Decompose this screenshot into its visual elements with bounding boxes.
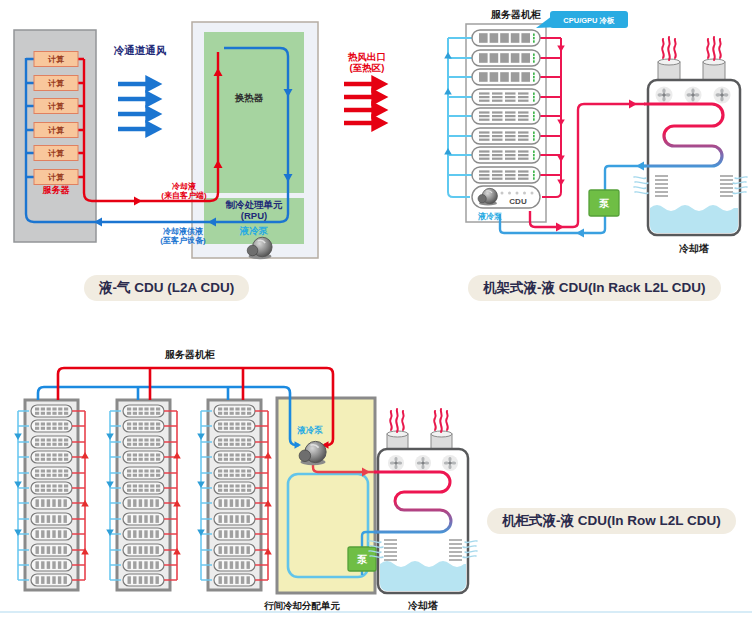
compute-label: 计算 <box>47 126 64 135</box>
server-label: 服务器 <box>42 185 71 195</box>
cabinet-label: 服务器机柜 <box>490 9 541 20</box>
server-rack-3 <box>197 400 272 590</box>
pump-label: 液冷泵 <box>477 211 502 221</box>
l2a-cdu-diagram: 计算 计算 计算 计算 计算 计算 服务器 冷通道通风 热风出口 (至热区) 冷… <box>14 22 386 259</box>
coolant-supply-label: 冷却液供液 <box>163 226 204 236</box>
fan-icon <box>442 455 458 471</box>
coolant-in-label: 冷却液 <box>172 181 197 191</box>
coolant-in-sublabel: (来自客户端) <box>161 190 207 200</box>
cabinet-label: 服务器机柜 <box>164 349 215 360</box>
compute-label: 计算 <box>47 55 64 64</box>
pump-label: 液冷泵 <box>296 425 323 435</box>
in-row-cdu-diagram: 服务器机柜 液冷泵 泵 <box>14 349 477 611</box>
cold-aisle-airflow-arrows <box>118 84 148 129</box>
hot-air-outlet-sublabel: (至热区) <box>350 62 385 73</box>
tower-label: 冷却塔 <box>679 243 710 254</box>
in-row-unit-label: 行间冷却分配单元 <box>263 600 341 611</box>
coldplate-tag-label: CPU/GPU 冷板 <box>563 16 615 25</box>
cold-aisle-label: 冷通道通风 <box>114 44 167 56</box>
heat-exhaust-icon <box>390 409 404 432</box>
facility-pump-label: 泵 <box>598 198 610 209</box>
cooling-tower: 冷却塔 <box>634 37 747 254</box>
pump-label: 液冷泵 <box>239 225 269 236</box>
facility-pump-label: 泵 <box>356 554 368 565</box>
coolant-supply-sublabel: (至客户设备) <box>160 235 206 245</box>
compute-label: 计算 <box>47 102 64 111</box>
fan-icon <box>655 86 672 103</box>
tower-label: 冷却塔 <box>408 600 439 611</box>
in-rack-title-pill: 机架式液-液 CDU(In Rack L2L CDU) <box>468 275 721 301</box>
bottom-divider <box>0 611 752 613</box>
compute-label: 计算 <box>47 79 64 88</box>
hot-air-arrows <box>344 84 374 123</box>
in-rack-cdu-diagram: 服务器机柜 冷却塔 <box>444 9 747 254</box>
cooling-tower: 冷却塔 <box>369 409 477 611</box>
heat-exchanger-label: 换热器 <box>234 92 264 103</box>
air-flow-icon <box>634 177 648 194</box>
compute-label: 计算 <box>47 149 64 158</box>
heat-exhaust-icon <box>707 37 721 60</box>
fan-icon <box>713 86 730 103</box>
rpu-label: 制冷处理单元 <box>225 199 284 210</box>
coldplate-callout: CPU/GPU 冷板 <box>536 11 628 28</box>
heat-exhaust-icon <box>434 409 448 432</box>
compute-label: 计算 <box>47 173 64 182</box>
l2a-title-pill: 液-气 CDU (L2A CDU) <box>84 275 249 301</box>
heat-exhaust-icon <box>662 37 676 60</box>
fan-icon <box>415 455 431 471</box>
cdu-label: CDU <box>509 197 527 206</box>
server-rack-1 <box>14 400 89 590</box>
server-rack-2 <box>106 400 181 590</box>
fan-icon <box>388 455 404 471</box>
in-row-title-pill: 机柜式液-液 CDU(In Row L2L CDU) <box>487 508 736 534</box>
rpu-sublabel: (RPU) <box>241 210 267 221</box>
fan-icon <box>684 86 701 103</box>
hot-air-outlet-label: 热风出口 <box>347 51 386 62</box>
